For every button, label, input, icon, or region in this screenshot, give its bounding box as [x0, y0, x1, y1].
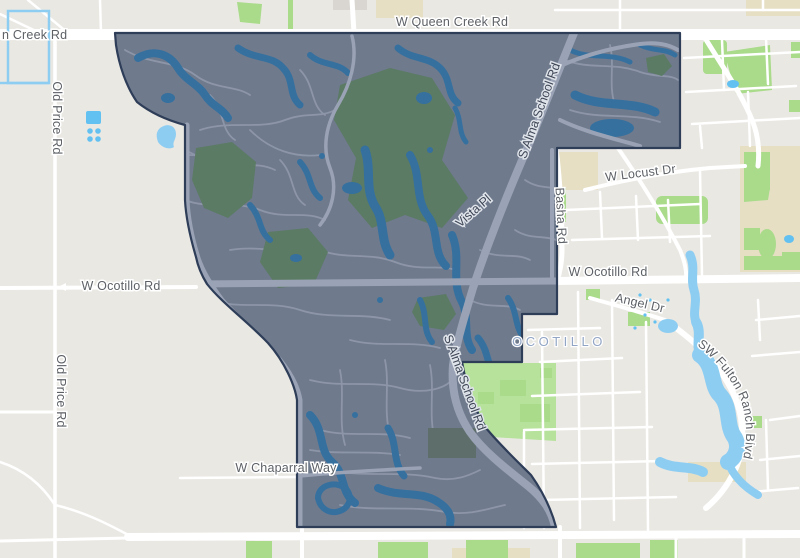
road-label-chaparral: W Chaparral Way: [235, 461, 337, 475]
map-art: n Creek Rd W Queen Creek Rd Old Price Rd…: [0, 0, 800, 558]
road-label-ocotillo-east: W Ocotillo Rd: [568, 265, 647, 279]
road-label-basha: Basha Rd: [553, 187, 570, 244]
road-label-ocotillo-west: W Ocotillo Rd: [81, 279, 160, 293]
road-label-old-price-upper: Old Price Rd: [50, 81, 64, 154]
road-label-queen-creek-partial: n Creek Rd: [2, 28, 67, 42]
district-label-ocotillo: OCOTILLO: [512, 334, 606, 349]
road-label-queen-creek: W Queen Creek Rd: [396, 15, 508, 29]
road-label-old-price-lower: Old Price Rd: [54, 354, 68, 427]
map-canvas[interactable]: n Creek Rd W Queen Creek Rd Old Price Rd…: [0, 0, 800, 558]
